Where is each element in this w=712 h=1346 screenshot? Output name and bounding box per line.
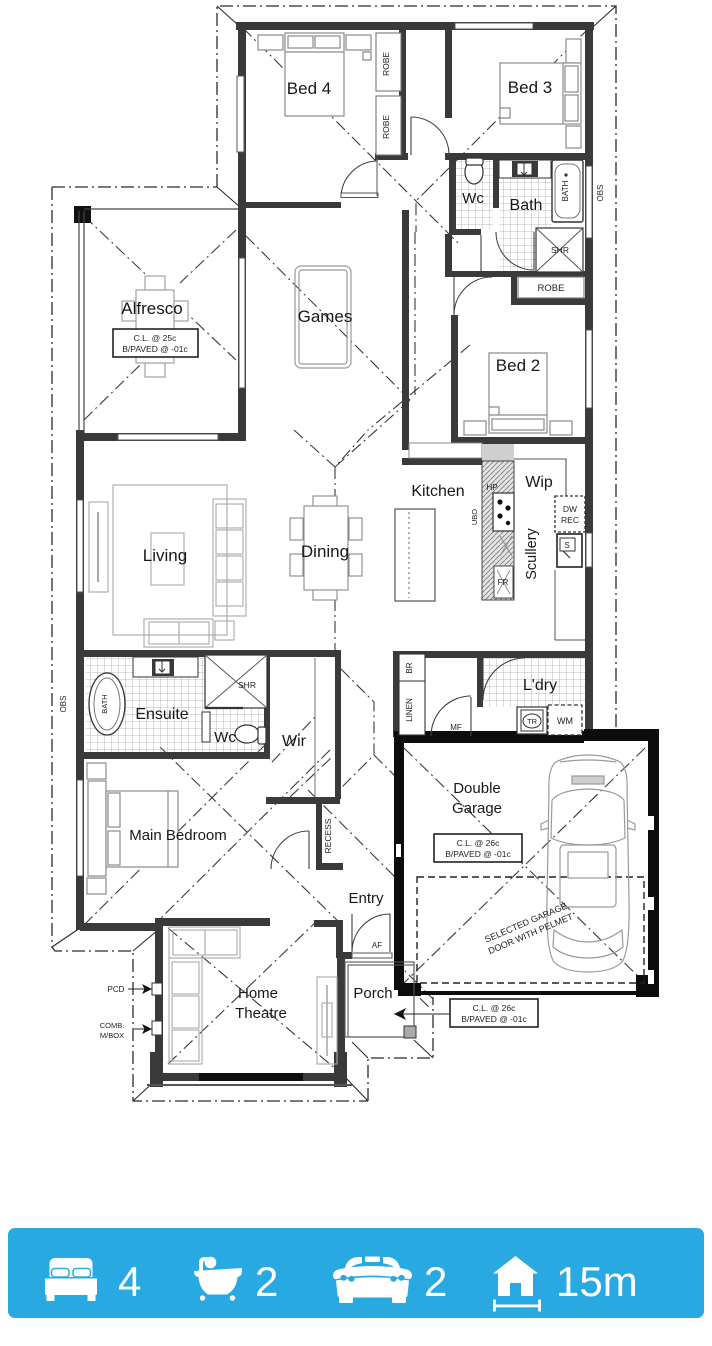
svg-text:Dining: Dining: [301, 542, 349, 561]
svg-text:Home: Home: [238, 985, 278, 1002]
svg-text:AF: AF: [372, 941, 382, 950]
svg-text:Scullery: Scullery: [524, 527, 540, 579]
svg-text:UBO: UBO: [470, 509, 479, 525]
svg-text:SHR: SHR: [551, 245, 569, 255]
svg-text:C.L. @ 25c: C.L. @ 25c: [134, 333, 177, 343]
svg-text:Bed 2: Bed 2: [496, 356, 540, 375]
svg-text:M/BOX: M/BOX: [100, 1031, 124, 1040]
svg-text:L'dry: L'dry: [523, 677, 557, 694]
svg-text:Bed 4: Bed 4: [287, 79, 331, 98]
svg-text:B/PAVED @ -01c: B/PAVED @ -01c: [122, 344, 188, 354]
svg-text:15m: 15m: [556, 1258, 638, 1305]
svg-text:Wc: Wc: [214, 729, 236, 746]
svg-text:Ensuite: Ensuite: [135, 706, 188, 723]
svg-text:C.L. @ 26c: C.L. @ 26c: [473, 1003, 516, 1013]
svg-text:Porch: Porch: [353, 985, 392, 1002]
svg-text:Kitchen: Kitchen: [411, 483, 464, 500]
svg-text:Living: Living: [143, 546, 187, 565]
svg-text:Main Bedroom: Main Bedroom: [129, 827, 227, 844]
svg-text:WM: WM: [557, 716, 573, 726]
svg-text:Theatre: Theatre: [235, 1005, 287, 1022]
svg-text:C.L. @ 26c: C.L. @ 26c: [457, 838, 500, 848]
svg-text:B/PAVED @ -01c: B/PAVED @ -01c: [445, 849, 511, 859]
svg-text:COMB.: COMB.: [100, 1021, 125, 1030]
svg-text:Double: Double: [453, 780, 501, 797]
svg-text:BR: BR: [405, 662, 414, 673]
svg-text:Bed 3: Bed 3: [508, 78, 552, 97]
svg-text:Alfresco: Alfresco: [121, 299, 182, 318]
svg-text:ROBE: ROBE: [538, 283, 565, 294]
svg-text:Garage: Garage: [452, 800, 502, 817]
svg-text:Games: Games: [298, 307, 353, 326]
svg-text:Wc: Wc: [462, 190, 484, 207]
svg-text:Wip: Wip: [525, 474, 553, 491]
svg-text:2: 2: [424, 1258, 447, 1305]
svg-text:4: 4: [118, 1258, 141, 1305]
svg-text:S: S: [564, 541, 569, 550]
svg-text:FR: FR: [498, 578, 509, 587]
svg-text:Bath: Bath: [510, 197, 543, 214]
svg-text:DW: DW: [563, 504, 577, 514]
svg-text:2: 2: [255, 1258, 278, 1305]
svg-text:WC: WC: [469, 170, 480, 176]
svg-text:ROBE: ROBE: [381, 115, 391, 139]
svg-text:WC: WC: [246, 733, 257, 739]
svg-text:RECESS: RECESS: [323, 818, 333, 853]
svg-text:BATH: BATH: [561, 180, 570, 201]
svg-text:PCD: PCD: [108, 985, 125, 994]
svg-text:HP: HP: [486, 483, 497, 492]
svg-text:TR: TR: [527, 717, 538, 726]
svg-text:LINEN: LINEN: [405, 698, 414, 722]
svg-text:OBS: OBS: [596, 185, 605, 202]
svg-text:Wir: Wir: [282, 733, 307, 750]
svg-text:BATH: BATH: [100, 694, 109, 713]
svg-text:ROBE: ROBE: [381, 52, 391, 76]
svg-text:B/PAVED @ -01c: B/PAVED @ -01c: [461, 1014, 527, 1024]
svg-text:SHR: SHR: [238, 680, 256, 690]
svg-text:OBS: OBS: [59, 696, 68, 713]
svg-text:REC: REC: [561, 515, 579, 525]
svg-text:Entry: Entry: [348, 890, 384, 907]
svg-text:MF: MF: [450, 723, 462, 732]
